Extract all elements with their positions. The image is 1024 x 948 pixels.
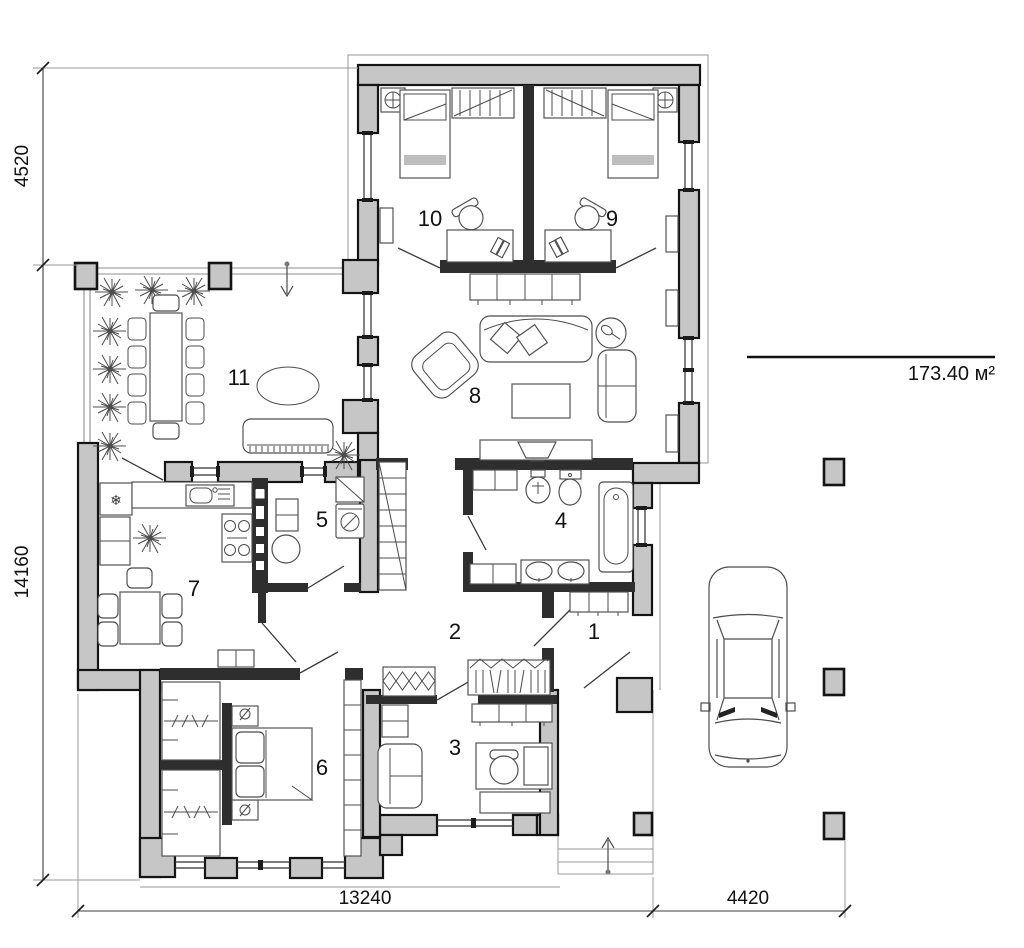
nightstand-bottom: [232, 800, 258, 820]
toilet: [559, 470, 581, 505]
room-label-3: 3: [449, 735, 461, 760]
window-bath-right: [636, 506, 647, 547]
terrace-bench: [243, 419, 333, 453]
wardrobe-6-upper: [162, 682, 220, 760]
utility-table: [272, 535, 300, 563]
double-bed: [232, 728, 312, 800]
windows-room3-south: [437, 818, 513, 828]
radiator-living-1: [666, 290, 678, 326]
total-area-label: 173.40 м²: [908, 363, 995, 385]
radiator-room9: [666, 216, 678, 252]
dim-bottom-right-width: 4420: [727, 888, 769, 909]
stove: [222, 514, 252, 562]
dim-left-height: 14160: [12, 546, 33, 599]
radiator-living-2: [666, 415, 678, 452]
entrance-steps: [558, 813, 653, 875]
porch-pillar: [634, 813, 652, 835]
bookshelf: [468, 659, 550, 695]
dim-top-left-height: 4520: [12, 145, 33, 187]
window-room9-right: [683, 140, 694, 192]
radiator-room10: [380, 208, 393, 243]
window-living-terrace-1: [362, 291, 373, 339]
room-label-8: 8: [469, 383, 481, 408]
ottoman: [383, 667, 435, 696]
floor-plan-svg: ❄: [0, 0, 1024, 948]
terrace-rug: [257, 367, 319, 405]
double-sink: [521, 560, 589, 584]
study-desk: [476, 743, 552, 813]
room-label-11: 11: [228, 365, 251, 390]
bidet: [526, 470, 550, 503]
car: [701, 567, 795, 767]
window-kitchen-north-2: [300, 466, 327, 477]
study-furniture: [378, 704, 552, 813]
room-label-6: 6: [316, 755, 328, 780]
window-living-right: [683, 336, 694, 405]
window-upper-left: [362, 131, 373, 202]
study-sofa: [378, 744, 422, 808]
room-label-5: 5: [316, 507, 328, 532]
coffee-table: [512, 384, 570, 418]
entry-furniture: [570, 592, 628, 616]
floor-plan-canvas: ❄: [0, 0, 1024, 948]
closet-right: [344, 680, 361, 856]
room-label-10: 10: [418, 206, 442, 231]
room-label-7: 7: [188, 576, 200, 601]
wardrobe-6-lower: [162, 770, 220, 856]
entry-cabinet: [570, 592, 628, 612]
room-label-9: 9: [606, 206, 618, 231]
room-label-4: 4: [555, 508, 567, 533]
desk-room10: [447, 197, 513, 262]
desk-room9: [545, 197, 611, 262]
wardrobe-room10: [452, 88, 514, 118]
window-living-terrace-2: [362, 363, 373, 402]
washing-machine: [336, 504, 364, 538]
bathtub: [599, 482, 633, 572]
hall-wardrobe: [379, 462, 406, 590]
corridor-furniture: [383, 659, 550, 696]
wardrobe-room9: [544, 88, 606, 118]
kitchen-sink: [186, 485, 234, 506]
kitchen-furniture: ❄: [98, 482, 254, 667]
snowflake-icon: ❄: [110, 492, 122, 508]
bedroom9-furniture: [544, 88, 678, 262]
nightstand-top: [232, 706, 258, 726]
study-cabinet: [472, 704, 552, 722]
carport: [701, 459, 844, 839]
living-room-furniture: [407, 274, 678, 461]
area-annotation: 173.40 м²: [747, 357, 995, 385]
carport-pillar-2: [824, 669, 844, 695]
room-label-2: 2: [449, 619, 461, 644]
terrace-table-set: [128, 295, 204, 439]
kitchen-table-set: [98, 568, 182, 646]
carport-pillar-1: [824, 459, 844, 485]
terrace-entry-arrow: [281, 262, 293, 297]
dim-bottom-main-width: 13240: [339, 888, 392, 909]
window-kitchen-north-1: [190, 466, 220, 477]
carport-pillar-3: [824, 813, 844, 839]
room-label-1: 1: [588, 619, 600, 644]
bedroom10-furniture: [380, 88, 514, 262]
bathroom-furniture: [470, 470, 633, 584]
tv-stand: [480, 440, 592, 461]
